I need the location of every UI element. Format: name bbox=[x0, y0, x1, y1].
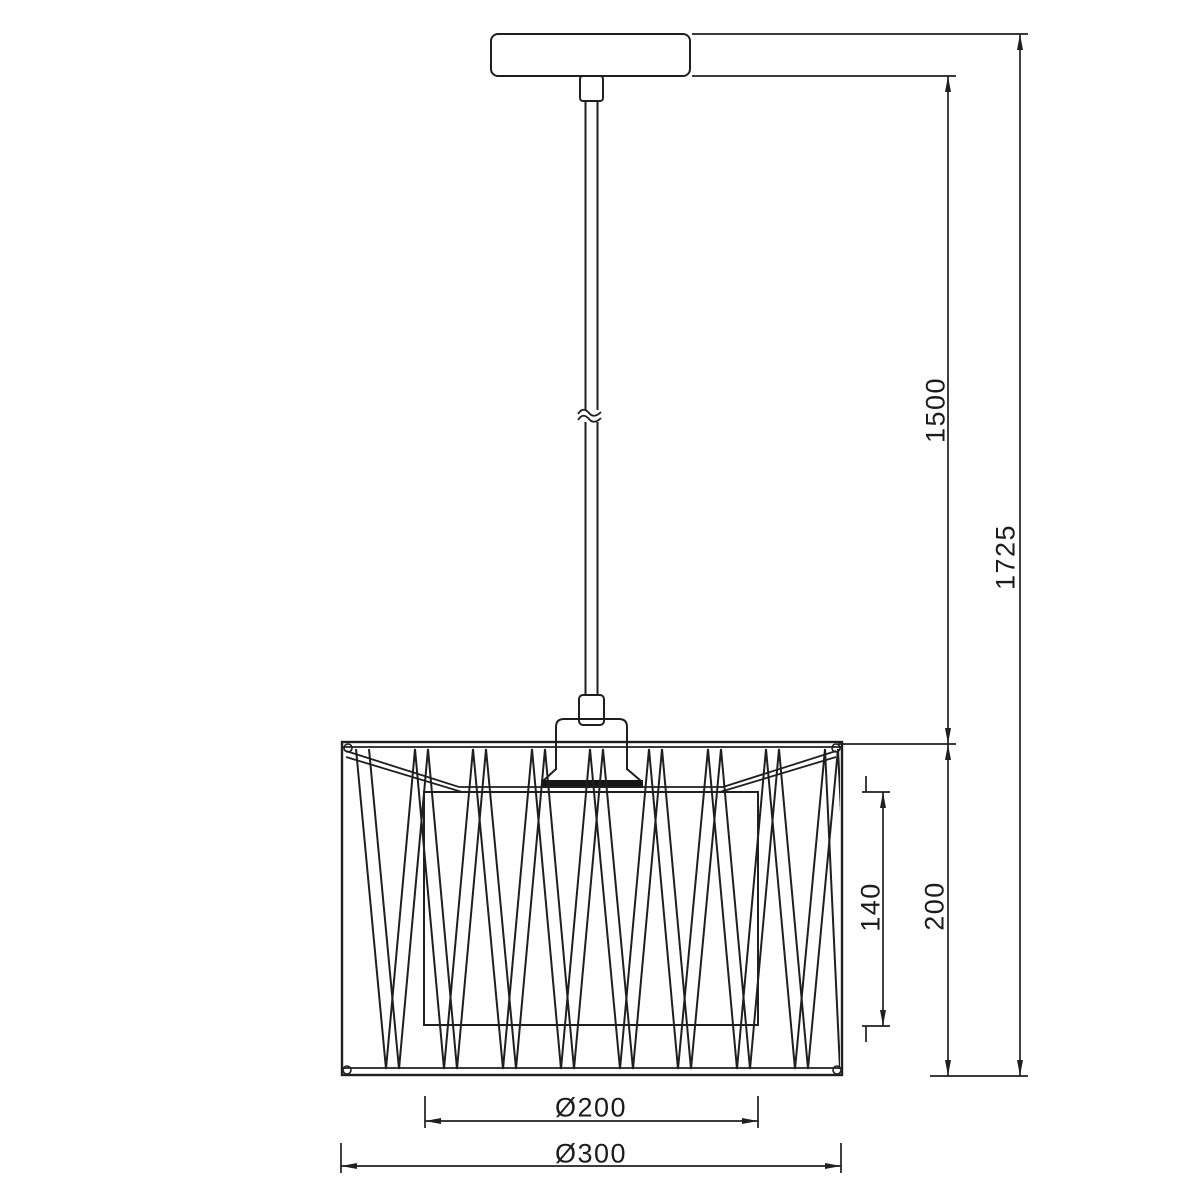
arrow-right-icon bbox=[825, 1163, 841, 1169]
arrow-down-icon bbox=[1017, 1060, 1023, 1076]
arrow-down-icon bbox=[880, 1010, 886, 1026]
dim-label-suspension-length: 1500 bbox=[923, 377, 950, 443]
ceiling-canopy bbox=[491, 34, 690, 101]
arrow-up-icon bbox=[945, 744, 951, 760]
arrow-down-icon bbox=[945, 728, 951, 744]
arrow-down-icon bbox=[945, 1060, 951, 1076]
cable-break-icon bbox=[578, 410, 601, 422]
arrow-up-icon bbox=[945, 76, 951, 92]
arrow-right-icon bbox=[742, 1118, 758, 1124]
dim-label-shade-height: 200 bbox=[922, 881, 949, 931]
shade-strings bbox=[356, 749, 853, 1069]
dim-label-inner-height: 140 bbox=[858, 882, 885, 932]
arrow-up-icon bbox=[880, 792, 886, 808]
arrow-left-icon bbox=[425, 1118, 441, 1124]
suspension-cable bbox=[578, 101, 601, 696]
dim-label-overall-height: 1725 bbox=[993, 524, 1020, 590]
socket-ferrule bbox=[579, 695, 604, 725]
arrow-left-icon bbox=[341, 1163, 357, 1169]
dim-label-inner-diameter: Ø200 bbox=[555, 1095, 627, 1122]
dim-label-outer-diameter: Ø300 bbox=[555, 1141, 627, 1168]
arrow-up-icon bbox=[1017, 34, 1023, 50]
technical-drawing-canvas: 1500 1725 200 140 Ø200 Ø300 bbox=[0, 0, 1200, 1200]
pendant-lamp-line-drawing bbox=[0, 0, 1200, 1200]
canopy-cable-fitting bbox=[580, 76, 603, 101]
dim-suspension-length bbox=[692, 76, 956, 744]
shade-inner-drum bbox=[424, 792, 758, 1025]
